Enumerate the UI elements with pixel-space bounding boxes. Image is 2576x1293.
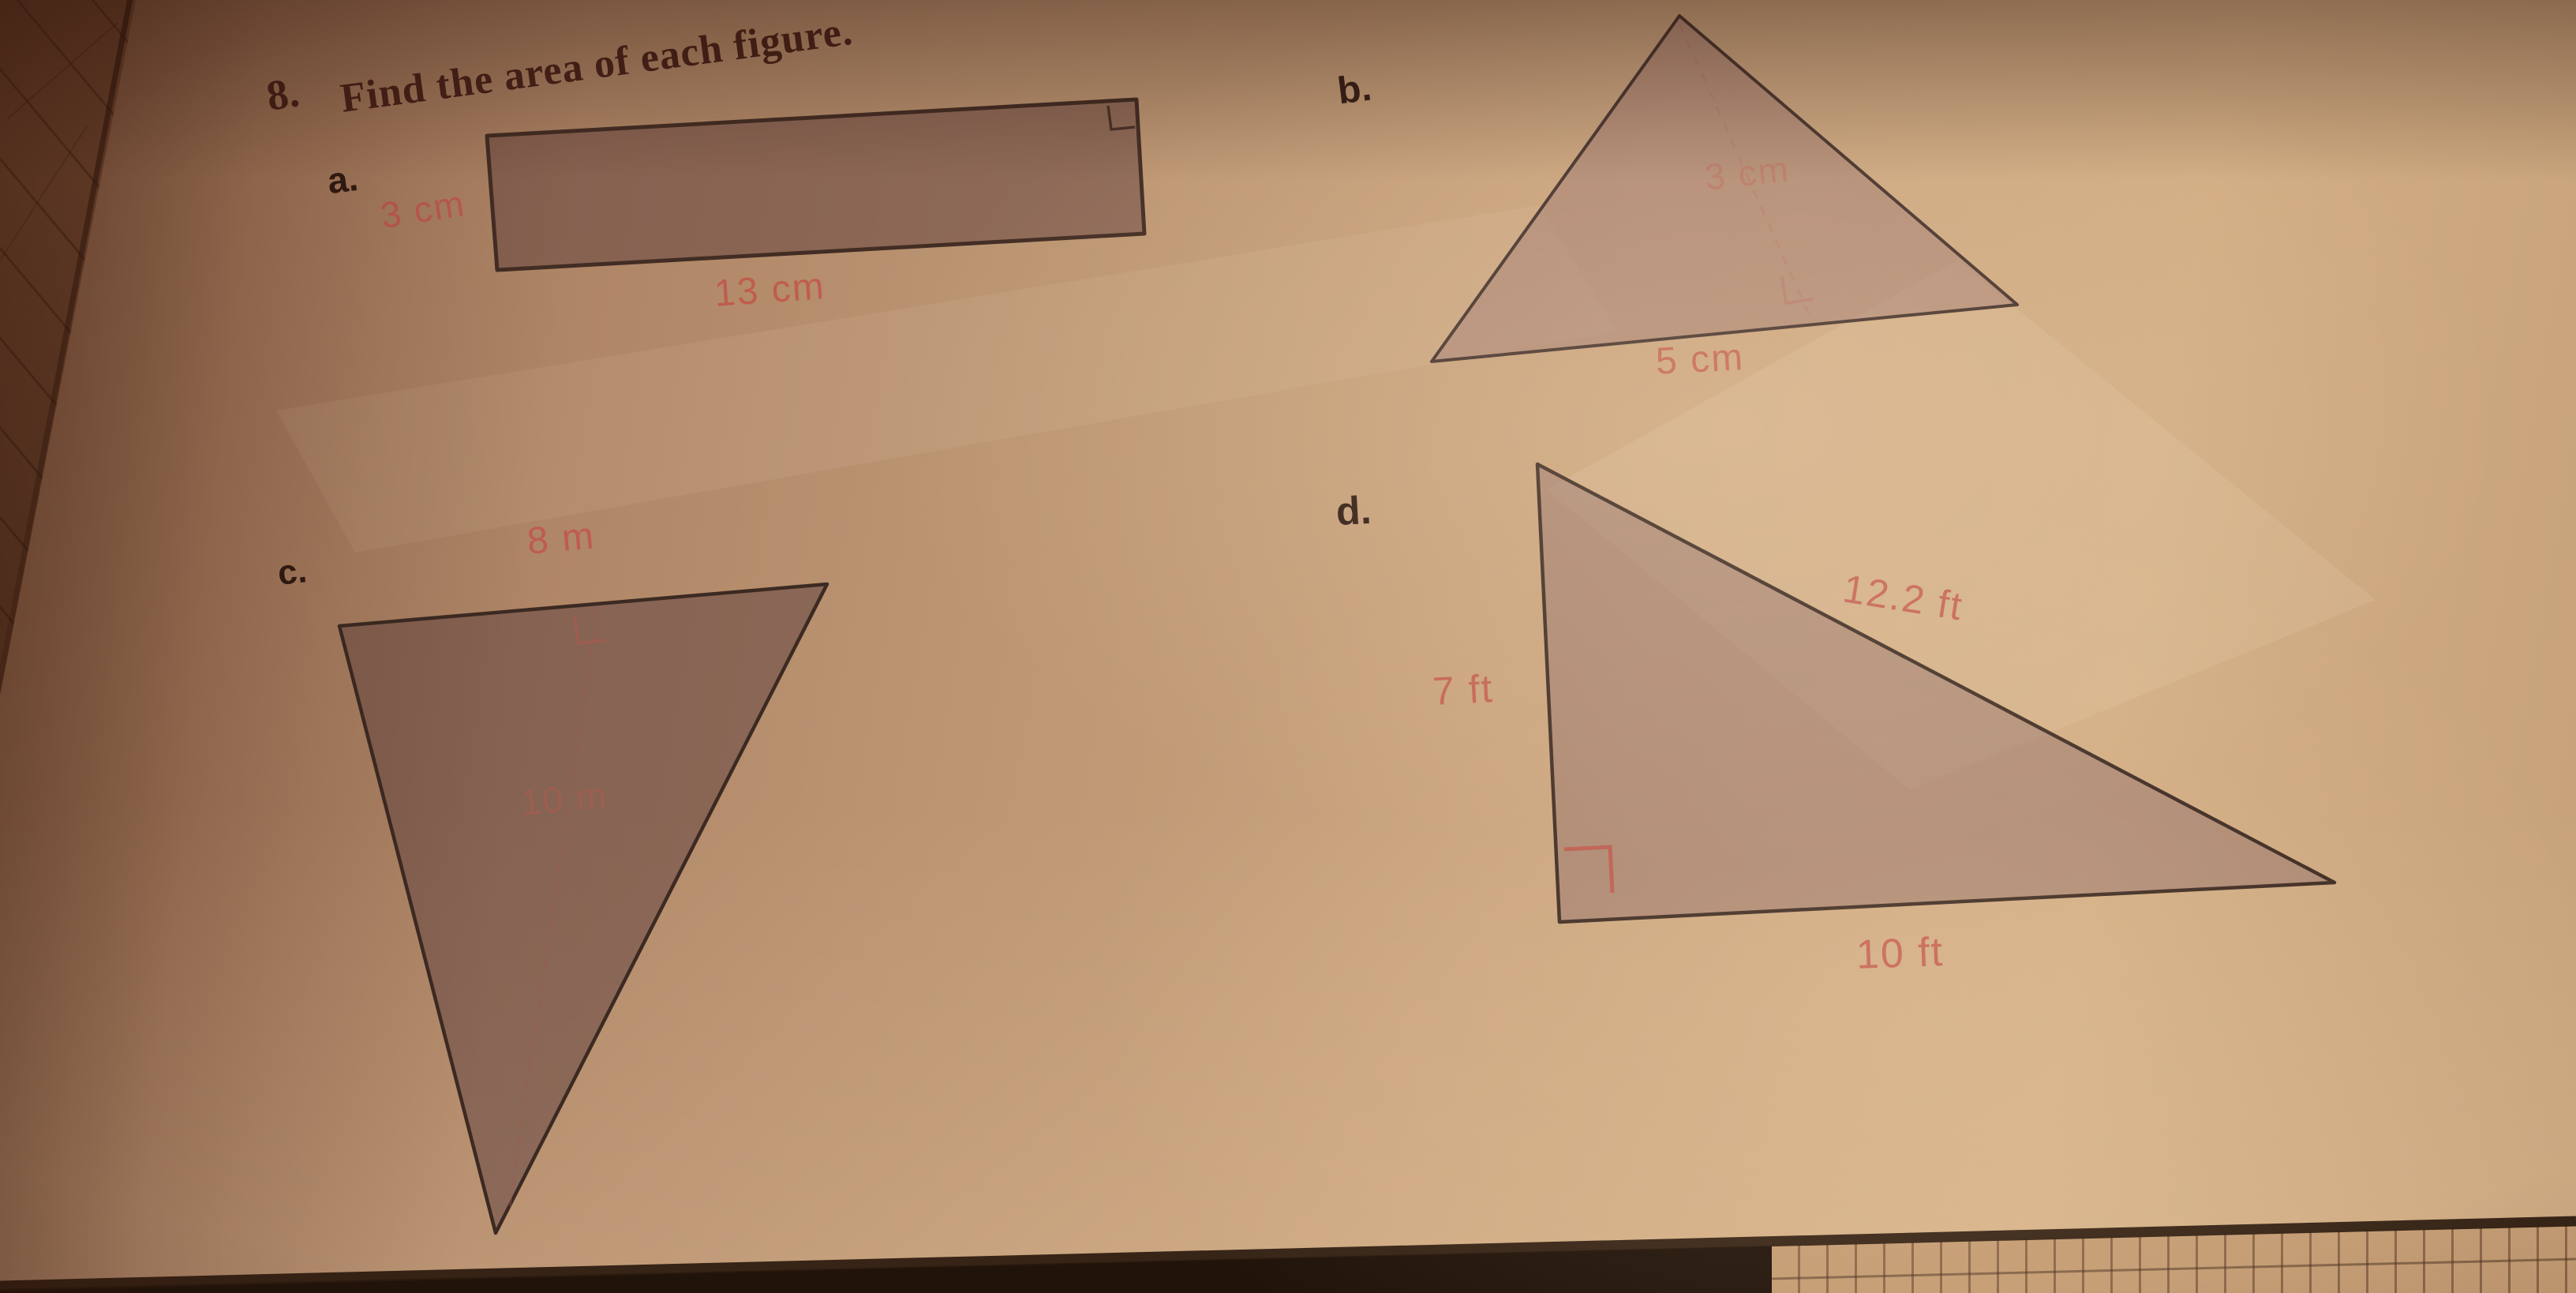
corner-grid-line xyxy=(8,22,118,118)
figure-b-height-label: 3 cm xyxy=(1702,148,1792,199)
figure-c-triangle xyxy=(339,584,827,1233)
corner-grid-line xyxy=(0,126,87,260)
figure-d-letter: d. xyxy=(1335,487,1372,534)
figure-d-base-label: 10 ft xyxy=(1855,928,1945,979)
figure-a-base-label: 13 cm xyxy=(713,264,826,316)
figure-c-base-label: 8 m xyxy=(526,514,597,563)
workbook-page-photo: 8. Find the area of each figure. a. 3 cm… xyxy=(0,0,2576,1293)
figure-b-letter: b. xyxy=(1335,66,1374,114)
figure-c-height-label: 10 m xyxy=(519,774,610,823)
figure-c-letter: c. xyxy=(275,551,309,594)
figure-d-leg-label: 7 ft xyxy=(1432,665,1495,714)
page-sheen xyxy=(276,205,1618,553)
figure-b-base-label: 5 cm xyxy=(1655,335,1746,384)
figure-a-rectangle xyxy=(487,99,1144,270)
figure-a-letter: a. xyxy=(325,156,361,202)
